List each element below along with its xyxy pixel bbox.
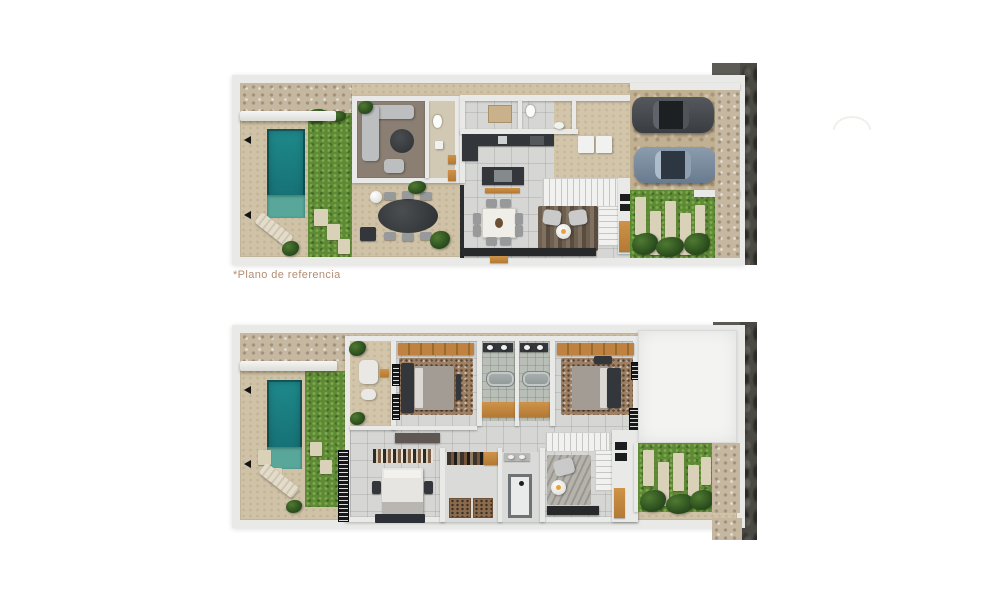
faint-watermark-mark bbox=[833, 116, 871, 130]
dining-chair bbox=[500, 237, 511, 245]
stepping-stone bbox=[327, 224, 340, 240]
side-table bbox=[556, 224, 571, 239]
headboard bbox=[607, 368, 621, 408]
armchair bbox=[542, 209, 562, 226]
outdoor-dining-table bbox=[378, 199, 438, 233]
wall-sink bbox=[554, 122, 564, 129]
window-louver bbox=[392, 394, 400, 420]
nightstand bbox=[594, 356, 612, 364]
shower-stall bbox=[508, 474, 532, 518]
powder-room-wall bbox=[425, 101, 429, 178]
north-garden-wall bbox=[240, 83, 352, 112]
living-room bbox=[352, 96, 460, 183]
bedroom-wardrobe bbox=[398, 343, 474, 355]
decor-bowl bbox=[556, 485, 561, 490]
island-bench bbox=[485, 188, 520, 193]
bathroom-vanity bbox=[504, 453, 530, 461]
dining-chair bbox=[515, 225, 523, 236]
guest-toilet bbox=[526, 105, 535, 117]
laundry-machine bbox=[488, 105, 512, 123]
dining-chair bbox=[384, 232, 396, 240]
entry-arrow-marker bbox=[244, 460, 251, 468]
sink bbox=[501, 345, 507, 350]
bedroom-wardrobe bbox=[557, 343, 634, 355]
garden-paver bbox=[665, 201, 676, 241]
master-window-wall bbox=[338, 450, 349, 522]
garden-paver bbox=[643, 450, 654, 486]
garden-paver bbox=[673, 453, 684, 491]
door-jamb bbox=[448, 155, 456, 164]
dining-chair bbox=[402, 233, 414, 241]
ottoman bbox=[361, 389, 376, 400]
car bbox=[632, 97, 714, 133]
decor-bowl bbox=[561, 229, 566, 234]
house-north-wall bbox=[460, 95, 632, 101]
dining-chair bbox=[500, 199, 511, 207]
armchair bbox=[568, 209, 588, 226]
bed bbox=[572, 366, 609, 410]
staircase-lower-flight bbox=[598, 206, 620, 247]
page: { "page": { "background": "#ffffff" }, "… bbox=[0, 0, 1000, 600]
media-console bbox=[462, 248, 596, 256]
dining-chair bbox=[486, 237, 497, 245]
dining-chair bbox=[473, 225, 481, 236]
storage-cube bbox=[596, 136, 612, 153]
stepping-stone bbox=[338, 239, 350, 254]
side-stone-wall bbox=[712, 443, 740, 513]
pillows bbox=[384, 470, 421, 478]
stepping-stone bbox=[320, 460, 332, 474]
bathtub bbox=[486, 371, 515, 387]
garden-paver bbox=[635, 197, 646, 235]
sink bbox=[519, 455, 525, 459]
dining-chair bbox=[384, 192, 396, 200]
entry-arrow-marker bbox=[244, 211, 251, 219]
dining-chair bbox=[486, 199, 497, 207]
sink bbox=[537, 345, 543, 350]
hall-wall bbox=[350, 426, 477, 430]
powder-room-toilet bbox=[433, 115, 442, 128]
master-bed bbox=[382, 468, 423, 516]
roof-terrace bbox=[638, 330, 737, 443]
bathtub bbox=[522, 371, 551, 387]
pillows bbox=[415, 368, 423, 408]
pool-tanning-ledge bbox=[267, 447, 302, 469]
staircase-main bbox=[542, 178, 620, 207]
sofa-seat bbox=[384, 159, 404, 173]
stepping-stone bbox=[310, 442, 322, 456]
master-rug bbox=[375, 514, 425, 523]
kitchen-counter-arm bbox=[462, 146, 478, 161]
partition-wall bbox=[540, 448, 545, 522]
nook-side-table bbox=[380, 369, 389, 377]
car bbox=[634, 147, 716, 183]
reading-chair bbox=[359, 360, 378, 384]
floor-lamp bbox=[370, 191, 382, 203]
bed bbox=[414, 366, 454, 410]
shower-head bbox=[519, 481, 524, 486]
entry-arrow-marker bbox=[244, 386, 251, 394]
stepping-stone bbox=[314, 209, 328, 226]
window-louver bbox=[392, 364, 400, 386]
island-top bbox=[494, 170, 512, 182]
north-garden-wall bbox=[240, 333, 345, 361]
dining-chair bbox=[515, 213, 523, 224]
bathroom-deck bbox=[519, 402, 550, 417]
powder-room-sink bbox=[435, 141, 443, 149]
garden-paver bbox=[701, 457, 711, 485]
bathroom-deck bbox=[482, 402, 515, 417]
nightstand bbox=[372, 481, 381, 494]
coffee-table bbox=[390, 129, 414, 153]
swimming-pool bbox=[267, 380, 302, 469]
cooktop bbox=[530, 136, 544, 145]
nightstand bbox=[424, 481, 433, 494]
grill-cart bbox=[360, 227, 376, 241]
table-centerpiece bbox=[495, 218, 503, 228]
entry-mat bbox=[490, 256, 508, 263]
wall-niche bbox=[615, 442, 627, 450]
bathroom-vanity bbox=[520, 343, 548, 352]
car-cabin bbox=[653, 101, 689, 128]
side-table bbox=[551, 480, 566, 495]
pergola-beam bbox=[240, 361, 337, 371]
side-stone-wall bbox=[715, 90, 740, 258]
hallway-console bbox=[395, 433, 440, 443]
reference-caption: *Plano de referencia bbox=[233, 269, 341, 281]
car-cabin bbox=[655, 151, 691, 178]
shoe-rack bbox=[449, 498, 471, 518]
pool-tanning-ledge bbox=[267, 195, 305, 218]
powder-room-floor bbox=[429, 101, 455, 178]
wall-niche bbox=[615, 453, 627, 461]
sink bbox=[508, 455, 514, 459]
garden-paver bbox=[695, 205, 705, 235]
sink bbox=[487, 345, 493, 350]
entry-arrow-marker bbox=[244, 136, 251, 144]
bed-bench bbox=[456, 374, 461, 400]
media-console bbox=[547, 506, 599, 515]
closet-cabinet bbox=[484, 452, 498, 465]
carport-beam bbox=[630, 83, 740, 90]
stepping-stone bbox=[258, 450, 271, 465]
master-accent-wall bbox=[373, 449, 433, 463]
bedroom-door bbox=[614, 488, 625, 518]
shoe-rack bbox=[473, 498, 493, 518]
door-jamb bbox=[448, 170, 456, 181]
headboard bbox=[401, 363, 414, 413]
upper-floor-plan bbox=[232, 322, 757, 540]
kitchen-island bbox=[482, 167, 524, 185]
swimming-pool bbox=[267, 129, 305, 218]
storage-cube bbox=[578, 136, 594, 153]
partition-wall bbox=[550, 341, 555, 426]
staircase-upper-flight bbox=[545, 432, 610, 452]
dining-chair bbox=[420, 192, 432, 200]
ground-floor-plan bbox=[232, 63, 757, 265]
bathroom-vanity bbox=[483, 343, 513, 352]
pergola-beam bbox=[240, 111, 336, 121]
sink bbox=[524, 345, 530, 350]
indoor-dining-table bbox=[482, 208, 516, 238]
dining-chair bbox=[473, 213, 481, 224]
kitchen-sink bbox=[498, 136, 507, 144]
gate-post bbox=[712, 518, 742, 540]
